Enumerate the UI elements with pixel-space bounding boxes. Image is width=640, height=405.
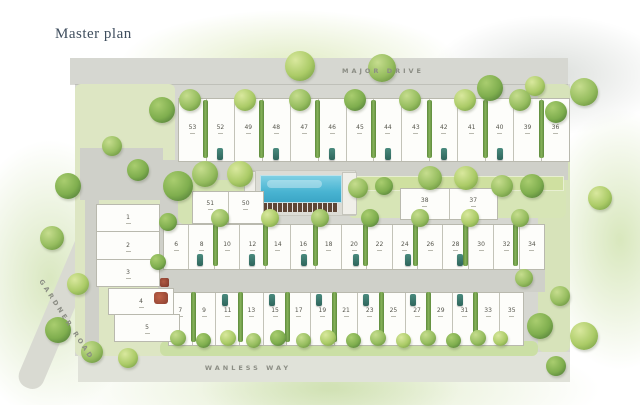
hedge-icon [463, 224, 468, 266]
tree-icon [102, 136, 122, 156]
lot-number: 49 [235, 125, 262, 134]
tree-icon [220, 330, 236, 346]
lot-number: 1 [97, 215, 159, 224]
tree-icon [179, 89, 201, 111]
car-icon [273, 148, 279, 160]
hedge-icon [263, 224, 268, 266]
tree-icon [311, 209, 329, 227]
lot-number: 9 [193, 308, 216, 317]
lot-number: 42 [430, 125, 457, 134]
hedge-icon [315, 100, 320, 158]
lot-number: 8 [189, 242, 213, 251]
lot-number: 2 [97, 243, 159, 252]
hedge-icon [413, 224, 418, 266]
tree-icon [149, 97, 175, 123]
lot: 18 [316, 225, 341, 269]
tree-icon [320, 330, 336, 346]
car-icon [329, 148, 335, 160]
lot-number: 35 [500, 308, 523, 317]
lot-number: 11 [216, 308, 239, 317]
tree-icon [348, 178, 368, 198]
tree-icon [285, 51, 315, 81]
lot-number: 19 [311, 308, 334, 317]
tree-icon [420, 330, 436, 346]
hedge-icon [539, 100, 544, 158]
car-icon [457, 294, 463, 306]
lot-number: 21 [335, 308, 358, 317]
tree-icon [192, 161, 218, 187]
lot-number: 12 [240, 242, 264, 251]
tree-icon [399, 89, 421, 111]
lot-number: 40 [486, 125, 513, 134]
tree-icon [289, 89, 311, 111]
tree-icon [515, 269, 533, 287]
hedge-icon [313, 224, 318, 266]
tree-icon [211, 209, 229, 227]
tree-icon [370, 330, 386, 346]
flower-bed [160, 278, 169, 287]
tree-icon [454, 89, 476, 111]
lot-number: 39 [514, 125, 541, 134]
car-icon [457, 254, 463, 266]
tree-icon [546, 356, 566, 376]
lot-number: 10 [215, 242, 239, 251]
lot: 6 [164, 225, 189, 269]
tree-icon [150, 254, 166, 270]
hedge-icon [285, 292, 290, 342]
tree-icon [491, 175, 513, 197]
tree-icon [261, 209, 279, 227]
tree-icon [227, 161, 253, 187]
tree-icon [511, 209, 529, 227]
lot-number: 29 [429, 308, 452, 317]
lot-number: 17 [287, 308, 310, 317]
lot-number: 15 [264, 308, 287, 317]
swimming-pool [260, 175, 342, 203]
tree-icon [570, 78, 598, 106]
car-icon [353, 254, 359, 266]
tree-icon [67, 273, 89, 295]
tree-icon [545, 101, 567, 123]
wanless-way-label: WANLESS WAY [198, 364, 298, 372]
lot: 22 [367, 225, 392, 269]
tree-icon [246, 333, 261, 348]
hedge-icon [191, 292, 196, 342]
hedge-icon [259, 100, 264, 158]
car-icon [410, 294, 416, 306]
car-icon [222, 294, 228, 306]
tree-icon [520, 174, 544, 198]
tree-icon [170, 330, 186, 346]
tree-icon [550, 286, 570, 306]
tree-icon [509, 89, 531, 111]
lot-number: 48 [263, 125, 290, 134]
tree-icon [270, 330, 286, 346]
lot-number: 23 [358, 308, 381, 317]
tree-icon [344, 89, 366, 111]
lot-number: 27 [406, 308, 429, 317]
lot-number: 46 [319, 125, 346, 134]
tree-icon [446, 333, 461, 348]
lot-number: 38 [401, 198, 449, 207]
hedge-icon [427, 100, 432, 158]
entry-court-west [80, 148, 163, 200]
lot-number: 25 [382, 308, 405, 317]
lot-number: 6 [164, 242, 188, 251]
tree-icon [375, 177, 393, 195]
hedge-icon [203, 100, 208, 158]
tree-icon [454, 166, 478, 190]
tree-icon [527, 313, 553, 339]
tree-icon [346, 333, 361, 348]
major-drive-label: MAJOR DRIVE [318, 67, 448, 75]
lot: 2 [96, 231, 160, 260]
tree-icon [570, 322, 598, 350]
tree-icon [477, 75, 503, 101]
hedge-icon [238, 292, 243, 342]
internal-road-south [158, 268, 545, 292]
lot-number: 47 [291, 125, 318, 134]
hedge-icon [483, 100, 488, 158]
lot-number: 3 [97, 270, 159, 279]
lot-number: 36 [542, 125, 569, 134]
lot-number: 16 [291, 242, 315, 251]
tree-icon [493, 331, 508, 346]
tree-icon [411, 209, 429, 227]
lot-number: 44 [374, 125, 401, 134]
tree-icon [55, 173, 81, 199]
tree-icon [40, 226, 64, 250]
tree-icon [118, 348, 138, 368]
car-icon [385, 148, 391, 160]
lot-number: 52 [207, 125, 234, 134]
lot: 50 [229, 192, 264, 223]
lot-number: 43 [402, 125, 429, 134]
car-icon [441, 148, 447, 160]
lot-number: 41 [458, 125, 485, 134]
lot-number: 37 [450, 198, 498, 207]
tree-icon [470, 330, 486, 346]
wanless-way-road [78, 352, 570, 382]
tree-icon [461, 209, 479, 227]
lot: 10 [215, 225, 240, 269]
car-icon [217, 148, 223, 160]
lot-number: 18 [316, 242, 340, 251]
lot: 1 [96, 204, 160, 232]
car-icon [301, 254, 307, 266]
lot-number: 34 [520, 242, 544, 251]
flower-bed [154, 292, 168, 304]
hedge-icon [213, 224, 218, 266]
lot-number: 33 [477, 308, 500, 317]
car-icon [405, 254, 411, 266]
lot: 30 [469, 225, 494, 269]
tree-icon [588, 186, 612, 210]
car-icon [497, 148, 503, 160]
lot-number: 50 [229, 201, 264, 210]
tree-icon [127, 159, 149, 181]
tree-icon [163, 171, 193, 201]
master-plan-canvas: Master plan MAJOR DRIVE WANLESS WAY GARD… [0, 0, 640, 405]
car-icon [316, 294, 322, 306]
lot-number: 26 [418, 242, 442, 251]
lot-number: 30 [469, 242, 493, 251]
car-icon [197, 254, 203, 266]
car-icon [249, 254, 255, 266]
tree-icon [418, 166, 442, 190]
hedge-icon [363, 224, 368, 266]
lot: 14 [266, 225, 291, 269]
tree-icon [159, 213, 177, 231]
lot-number: 14 [266, 242, 290, 251]
hedge-icon [371, 100, 376, 158]
lot-number: 5 [115, 325, 179, 334]
lot-number: 22 [367, 242, 391, 251]
tree-icon [396, 333, 411, 348]
tree-icon [361, 209, 379, 227]
lot: 34 [520, 225, 544, 269]
page-title: Master plan [55, 26, 132, 43]
tree-icon [196, 333, 211, 348]
lot-number: 13 [240, 308, 263, 317]
lot: 26 [418, 225, 443, 269]
tree-icon [234, 89, 256, 111]
car-icon [269, 294, 275, 306]
car-icon [363, 294, 369, 306]
tree-icon [296, 333, 311, 348]
lot-number: 45 [347, 125, 374, 134]
hedge-icon [513, 224, 518, 266]
lot-number: 53 [179, 125, 206, 134]
